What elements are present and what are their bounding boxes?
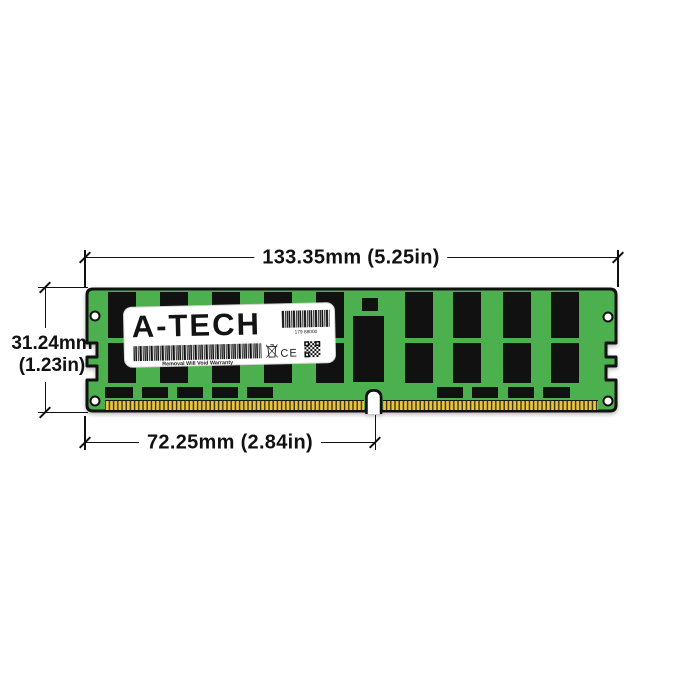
memory-chip [551, 343, 579, 383]
product-label: A-TECH 179 88000 Removal Will Void Warra… [123, 303, 335, 369]
brand-logo: A-TECH [131, 306, 261, 344]
small-chip [177, 387, 203, 398]
memory-chip [503, 343, 531, 383]
pin-span-extension-line-right [375, 415, 377, 450]
memory-chip [405, 343, 433, 383]
mounting-hole [91, 397, 100, 406]
gold-pin-strip [383, 401, 598, 410]
small-chip [437, 387, 463, 398]
gold-pin-strip [105, 401, 364, 410]
register-chip [353, 316, 384, 382]
small-chip [247, 387, 273, 398]
memory-module: A-TECH 179 88000 Removal Will Void Warra… [85, 287, 618, 413]
memory-chip [503, 292, 531, 338]
sticker-number: 179 88000 [295, 329, 318, 336]
barcode-icon [281, 310, 329, 328]
small-chip [212, 387, 238, 398]
spd-chip [362, 298, 378, 311]
mounting-hole [604, 313, 613, 322]
memory-chip [453, 292, 481, 338]
product-dimension-diagram: 133.35mm (5.25in) 31.24mm (1.23in) 72.25… [0, 0, 700, 700]
small-chip [105, 387, 133, 398]
small-chip [142, 387, 168, 398]
memory-chip [551, 292, 579, 338]
pin-span-dimension-label: 72.25mm (2.84in) [139, 430, 321, 457]
pin-span-extension-line-left [84, 416, 86, 450]
ce-mark: CE [280, 347, 298, 359]
qr-code-icon [304, 341, 320, 357]
memory-chip [453, 343, 481, 383]
mounting-hole [604, 397, 613, 406]
barcode-icon [133, 343, 261, 361]
mounting-hole [91, 312, 100, 321]
key-notch [367, 391, 382, 415]
small-chip [508, 387, 534, 398]
memory-chip [405, 292, 433, 338]
small-chip [472, 387, 498, 398]
small-chip [543, 387, 570, 398]
width-dimension-label: 133.35mm (5.25in) [254, 245, 447, 272]
